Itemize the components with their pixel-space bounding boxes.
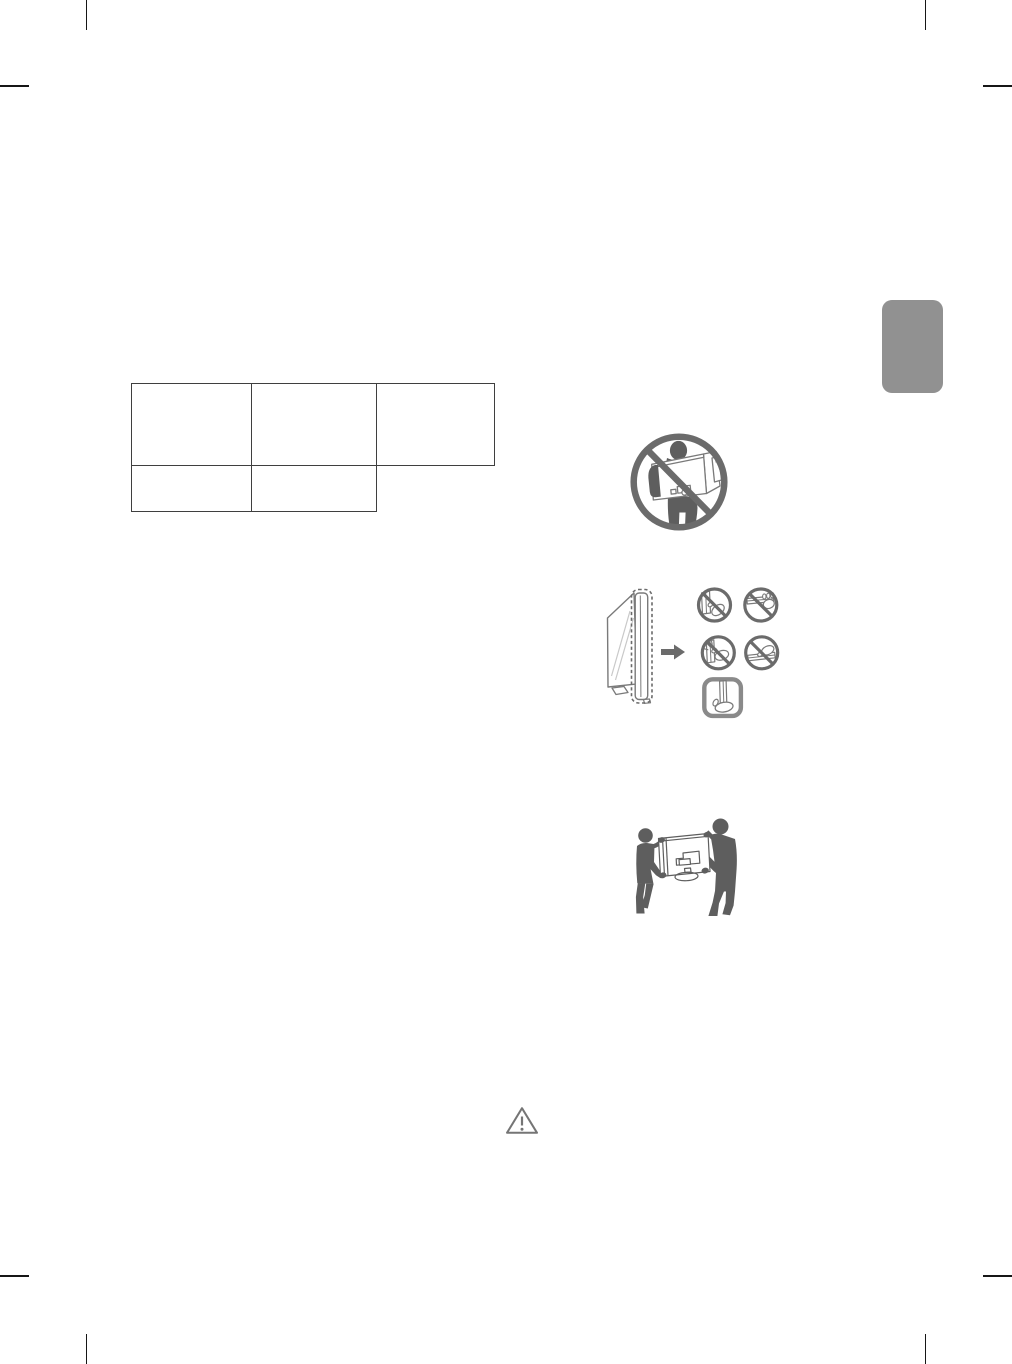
no-press-screen-icon <box>702 637 734 669</box>
panel-handling-instructions <box>600 578 786 726</box>
manual-page <box>0 0 1012 1364</box>
table-cell <box>377 384 495 466</box>
caution-triangle-icon <box>504 1105 540 1137</box>
spec-table <box>131 383 495 512</box>
table-row <box>132 384 495 466</box>
table-cell <box>132 466 252 512</box>
panel-side-view-icon <box>608 590 653 704</box>
crop-mark-bottom-left-vertical <box>86 1334 88 1364</box>
no-grip-bottom-edge-icon <box>746 637 778 669</box>
table-cell <box>252 466 377 512</box>
two-person-carry-icon <box>627 813 740 918</box>
crop-mark-top-left-horizontal <box>0 85 29 87</box>
crop-mark-top-right-horizontal <box>983 85 1012 87</box>
table-cell <box>132 384 252 466</box>
section-tab-marker <box>882 300 943 393</box>
crop-mark-bottom-left-horizontal <box>0 1275 29 1277</box>
arrow-right-icon <box>661 645 685 660</box>
table-row <box>132 466 495 512</box>
crop-mark-bottom-right-vertical <box>925 1334 927 1364</box>
table-cell-absent <box>377 466 495 512</box>
no-carry-alone-icon <box>628 431 730 533</box>
no-grip-top-edge-icon <box>745 589 777 621</box>
crop-mark-top-right-vertical <box>925 0 927 30</box>
crop-mark-bottom-right-horizontal <box>983 1275 1012 1277</box>
no-touch-corner-icon <box>699 589 731 621</box>
table-cell <box>252 384 377 466</box>
hold-bottom-frame-icon <box>704 679 741 716</box>
crop-mark-top-left-vertical <box>86 0 88 30</box>
